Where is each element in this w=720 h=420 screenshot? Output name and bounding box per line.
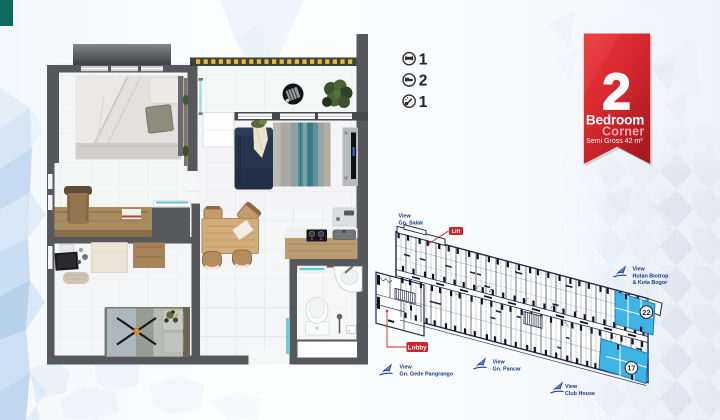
svg-text:1: 1 <box>419 94 428 111</box>
svg-text:1: 1 <box>419 51 428 68</box>
svg-text:Semi Gross 42 m2: Semi Gross 42 m2 <box>586 137 643 145</box>
svg-text:Club House: Club House <box>565 391 595 397</box>
svg-text:Lobby: Lobby <box>408 345 427 352</box>
svg-text:Gn. Gede Pangrango: Gn. Gede Pangrango <box>400 371 454 377</box>
svg-text:Corner: Corner <box>602 125 645 139</box>
svg-text:Gn. Pancar: Gn. Pancar <box>493 366 522 372</box>
svg-text:View: View <box>565 384 578 390</box>
svg-text:Lift: Lift <box>452 229 461 235</box>
svg-text:17: 17 <box>627 364 635 373</box>
svg-text:View: View <box>400 365 413 371</box>
svg-text:22: 22 <box>642 308 650 317</box>
svg-text:View: View <box>493 360 506 366</box>
svg-text:Gn. Salak: Gn. Salak <box>399 221 424 227</box>
svg-text:View: View <box>399 214 412 220</box>
svg-text:& Kota Bogor: & Kota Bogor <box>633 280 669 286</box>
svg-text:Hutan Biotrop: Hutan Biotrop <box>633 273 670 279</box>
svg-text:View: View <box>633 267 646 273</box>
svg-text:2: 2 <box>419 73 428 90</box>
